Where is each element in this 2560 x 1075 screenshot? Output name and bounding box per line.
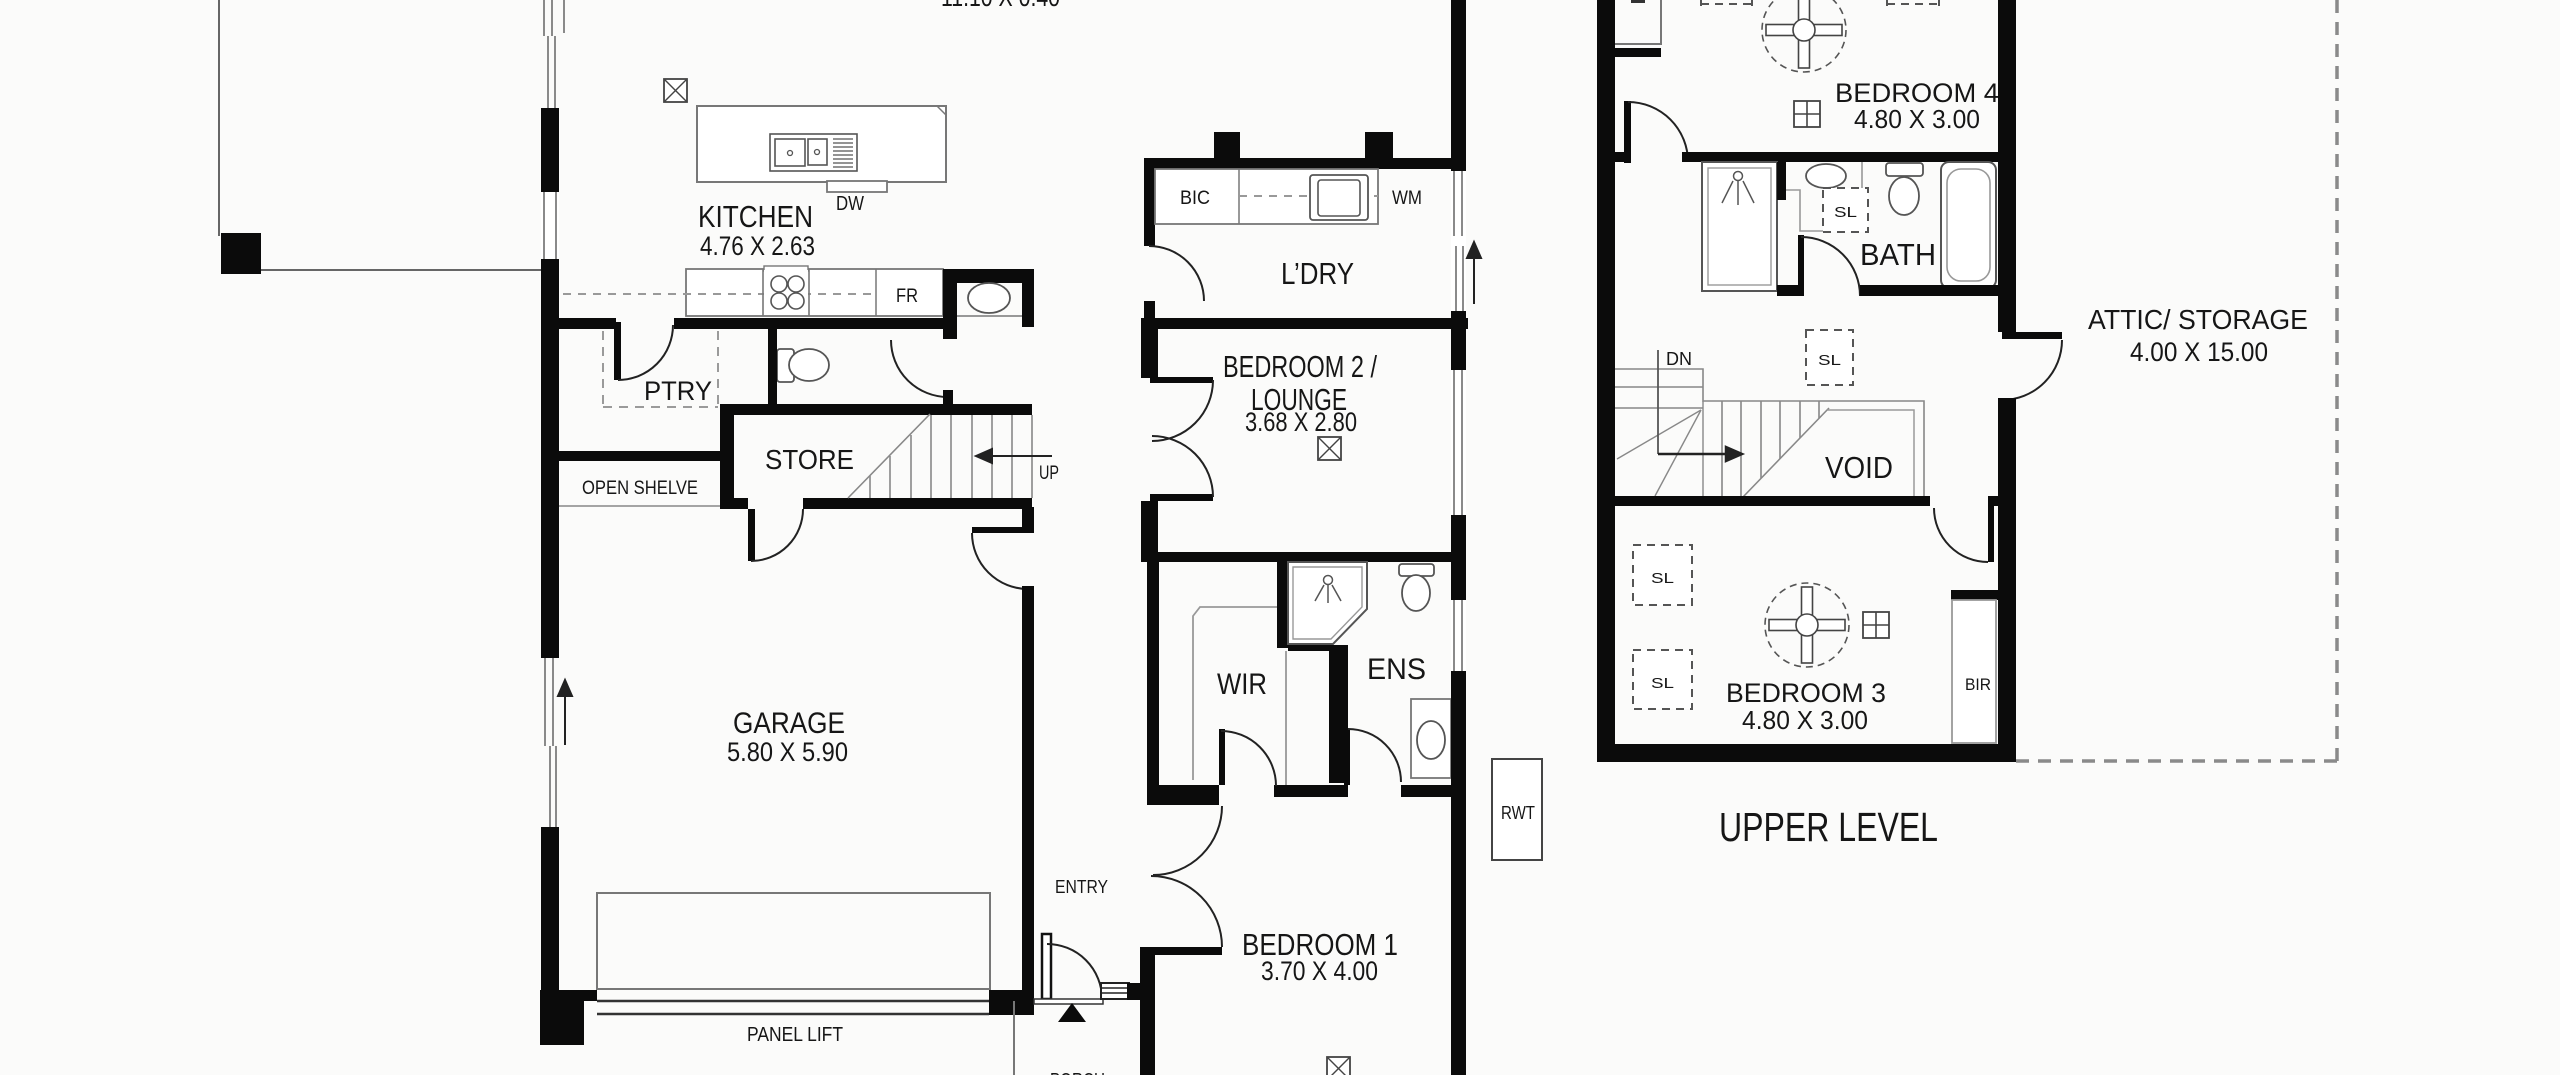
- svg-text:SL: SL: [1818, 352, 1841, 369]
- svg-text:SL: SL: [1651, 675, 1674, 692]
- svg-text:KITCHEN: KITCHEN: [698, 199, 813, 234]
- svg-text:11.10 X 0.40: 11.10 X 0.40: [941, 0, 1060, 12]
- svg-text:PTRY: PTRY: [644, 376, 712, 406]
- svg-text:ENTRY: ENTRY: [1055, 877, 1108, 897]
- svg-text:ATTIC/ STORAGE: ATTIC/ STORAGE: [2088, 304, 2308, 335]
- svg-text:GARAGE: GARAGE: [733, 707, 845, 740]
- svg-text:VOID: VOID: [1825, 450, 1893, 485]
- svg-text:OPEN SHELVE: OPEN SHELVE: [582, 478, 698, 499]
- svg-text:DN: DN: [1666, 349, 1692, 369]
- svg-text:3.70 X 4.00: 3.70 X 4.00: [1261, 956, 1378, 986]
- svg-text:SL: SL: [1651, 570, 1674, 587]
- svg-text:RWT: RWT: [1501, 803, 1535, 823]
- svg-text:STORE: STORE: [765, 444, 854, 475]
- svg-text:UPPER LEVEL: UPPER LEVEL: [1719, 804, 1938, 850]
- svg-text:PANEL LIFT: PANEL LIFT: [747, 1024, 843, 1046]
- svg-text:5.80 X 5.90: 5.80 X 5.90: [727, 737, 848, 767]
- svg-text:4.80 X 3.00: 4.80 X 3.00: [1854, 104, 1980, 134]
- svg-text:L’DRY: L’DRY: [1281, 256, 1354, 291]
- svg-text:3.68 X 2.80: 3.68 X 2.80: [1245, 407, 1357, 437]
- svg-text:4.00 X 15.00: 4.00 X 15.00: [2130, 337, 2268, 367]
- svg-text:BIR: BIR: [1965, 675, 1991, 694]
- svg-text:ENS: ENS: [1367, 653, 1426, 686]
- svg-text:PORCH: PORCH: [1050, 1070, 1105, 1075]
- svg-text:DW: DW: [836, 193, 864, 215]
- svg-text:BEDROOM 2 /: BEDROOM 2 /: [1223, 349, 1377, 384]
- svg-text:4.76 X 2.63: 4.76 X 2.63: [700, 231, 815, 261]
- svg-text:BATH: BATH: [1860, 237, 1936, 272]
- svg-text:BEDROOM 3: BEDROOM 3: [1726, 678, 1886, 708]
- svg-text:4.80 X 3.00: 4.80 X 3.00: [1742, 705, 1868, 735]
- svg-text:WIR: WIR: [1217, 668, 1267, 701]
- svg-text:FR: FR: [896, 286, 918, 307]
- svg-text:SL: SL: [1834, 204, 1857, 221]
- svg-text:WM: WM: [1392, 188, 1422, 209]
- svg-text:UP: UP: [1039, 463, 1059, 484]
- svg-text:BIC: BIC: [1180, 188, 1210, 209]
